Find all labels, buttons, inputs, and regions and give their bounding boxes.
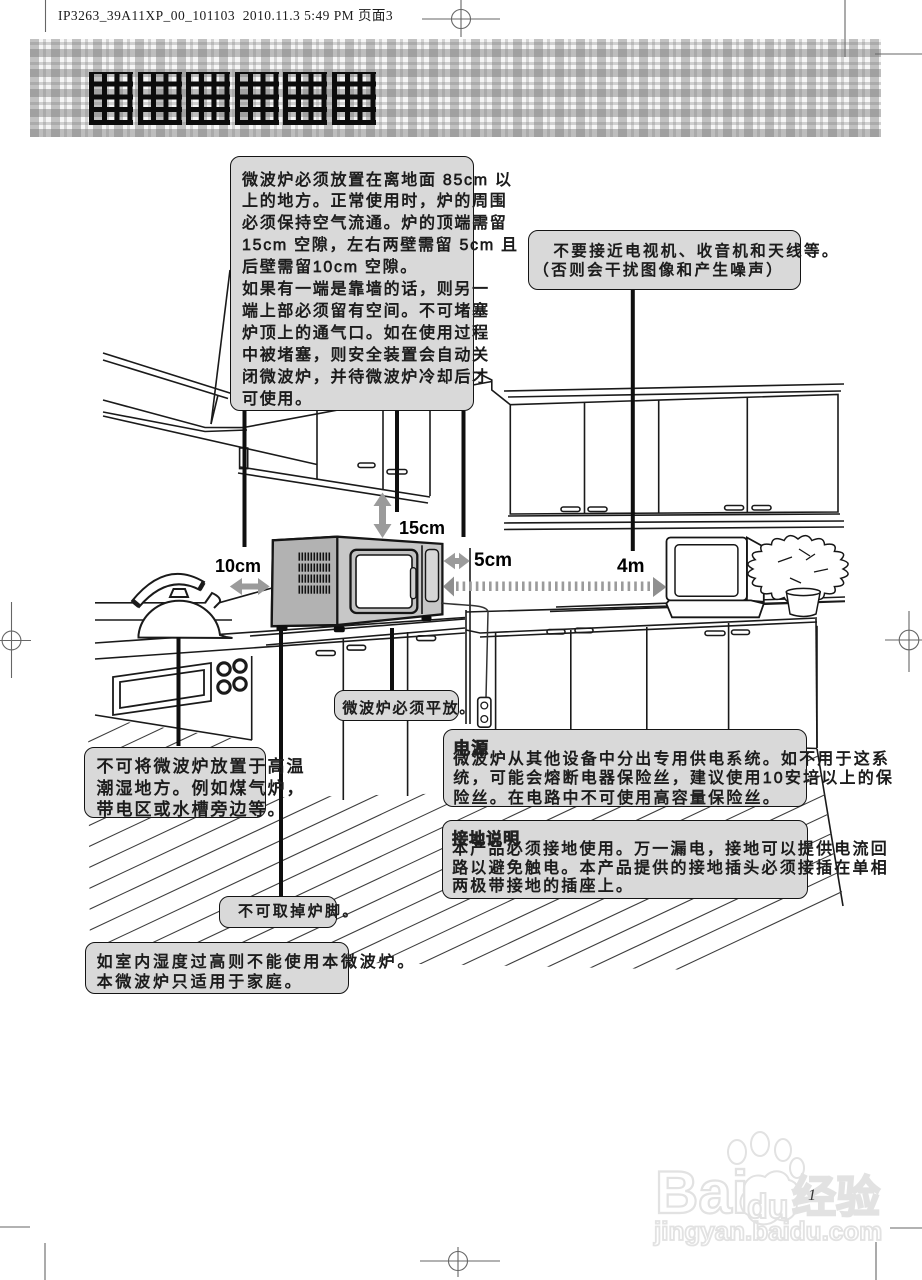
svg-text:经验: 经验 <box>792 1173 880 1222</box>
svg-text:jingyan.baidu.com: jingyan.baidu.com <box>653 1216 882 1246</box>
svg-text:1: 1 <box>808 1187 816 1204</box>
